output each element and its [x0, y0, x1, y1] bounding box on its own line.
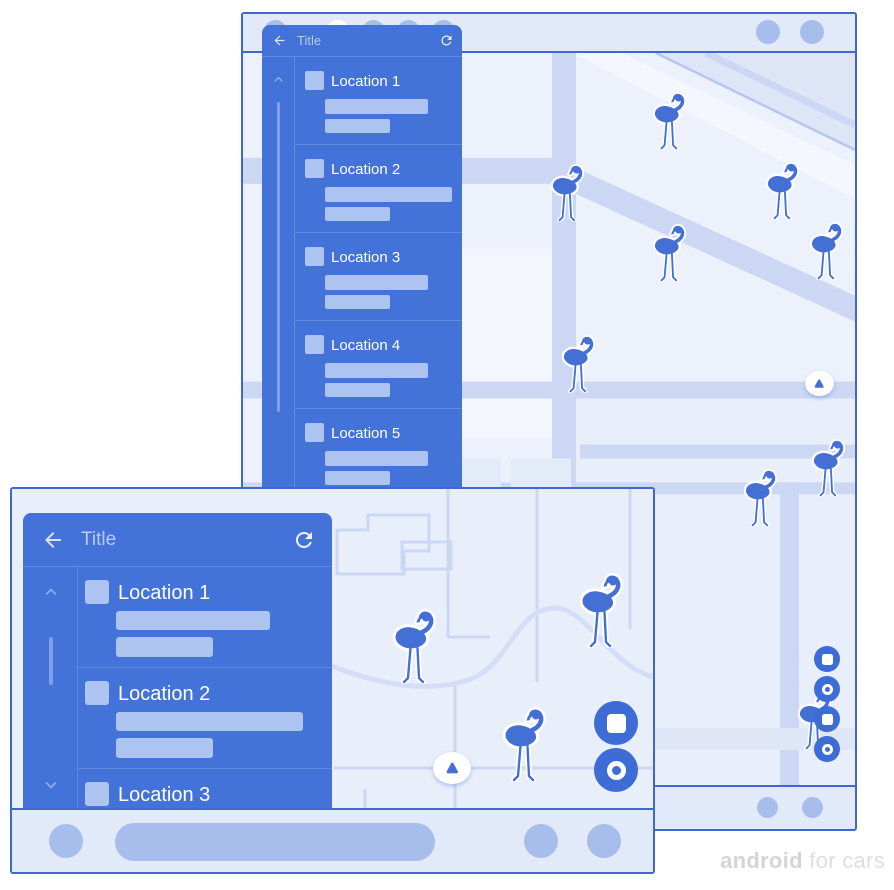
checkbox-placeholder	[85, 782, 109, 806]
car-window: Title Location 1	[10, 487, 655, 874]
nav-dot[interactable]	[524, 824, 558, 858]
checkbox-placeholder	[305, 159, 324, 178]
checkbox-placeholder	[305, 71, 324, 90]
scroll-rail	[262, 57, 295, 500]
flamingo-marker-icon[interactable]	[812, 438, 846, 497]
item-label: Location 2	[331, 161, 400, 178]
home-dot[interactable]	[49, 824, 83, 858]
text-placeholder-bar	[325, 99, 428, 114]
map-button-stack	[814, 646, 840, 762]
place-list-panel: Title Location 1	[23, 513, 332, 808]
map-action-button[interactable]	[814, 646, 840, 672]
text-placeholder-bar	[325, 471, 390, 485]
list-item[interactable]: Location 1	[78, 567, 332, 668]
square-icon	[822, 714, 833, 725]
flamingo-marker-icon[interactable]	[653, 91, 687, 150]
back-arrow-icon[interactable]	[41, 528, 65, 552]
map-action-button[interactable]	[814, 736, 840, 762]
list-item[interactable]: Location 4	[295, 321, 462, 409]
checkbox-placeholder	[305, 423, 324, 442]
item-label: Location 5	[331, 425, 400, 442]
status-dot[interactable]	[756, 20, 780, 44]
item-label: Location 4	[331, 337, 400, 354]
text-placeholder-bar	[116, 637, 213, 657]
checkbox-placeholder	[305, 335, 324, 354]
item-label: Location 1	[118, 582, 210, 605]
flamingo-marker-icon[interactable]	[653, 223, 687, 282]
list-item[interactable]: Location 1	[295, 57, 462, 145]
checkbox-placeholder	[85, 580, 109, 604]
map-action-button[interactable]	[594, 748, 638, 792]
text-placeholder-bar	[325, 207, 390, 221]
car-bottom-bar	[12, 808, 653, 872]
text-placeholder-bar	[325, 119, 390, 133]
nav-dot[interactable]	[802, 797, 823, 818]
back-arrow-icon[interactable]	[272, 33, 287, 48]
flamingo-marker-icon[interactable]	[393, 608, 437, 684]
watermark-suffix: for cars	[803, 848, 885, 873]
watermark-brand: android	[720, 848, 803, 873]
square-icon	[822, 654, 833, 665]
panel-body: Location 1 Location 2 Location 3	[23, 567, 332, 808]
list-item[interactable]: Location 3	[78, 769, 332, 808]
refresh-icon[interactable]	[439, 33, 454, 48]
chevron-up-icon[interactable]	[40, 581, 62, 603]
list-item[interactable]: Location 2	[295, 145, 462, 233]
nav-dot[interactable]	[587, 824, 621, 858]
checkbox-placeholder	[305, 247, 324, 266]
chevron-down-icon[interactable]	[40, 774, 62, 796]
text-placeholder-bar	[116, 611, 270, 630]
panel-body: Location 1 Location 2 Location 3	[262, 57, 462, 500]
flamingo-marker-icon[interactable]	[744, 468, 778, 527]
refresh-icon[interactable]	[292, 528, 316, 552]
flamingo-marker-icon[interactable]	[562, 334, 596, 393]
place-list: Location 1 Location 2 Location 3	[78, 567, 332, 808]
scrollbar-thumb[interactable]	[49, 637, 53, 685]
circle-icon	[822, 744, 833, 755]
item-label: Location 3	[118, 784, 210, 807]
circle-icon	[822, 684, 833, 695]
list-item[interactable]: Location 3	[295, 233, 462, 321]
map-button-stack	[594, 701, 638, 792]
nav-dot[interactable]	[757, 797, 778, 818]
item-label: Location 2	[118, 683, 210, 706]
scrollbar-thumb[interactable]	[277, 102, 280, 412]
list-item[interactable]: Location 5	[295, 409, 462, 497]
panel-title: Title	[297, 33, 439, 48]
text-placeholder-bar	[325, 295, 390, 309]
recenter-button[interactable]	[433, 752, 471, 784]
map-action-button[interactable]	[814, 676, 840, 702]
map-action-button[interactable]	[594, 701, 638, 745]
square-icon	[607, 714, 626, 733]
text-placeholder-bar	[325, 363, 428, 378]
watermark: android for cars	[720, 848, 885, 874]
nav-triangle-icon	[439, 757, 466, 779]
panel-header: Title	[262, 25, 462, 57]
flamingo-marker-icon[interactable]	[503, 706, 547, 782]
map-action-button[interactable]	[814, 706, 840, 732]
scroll-rail	[23, 567, 78, 808]
panel-header: Title	[23, 513, 332, 567]
flamingo-marker-icon[interactable]	[551, 163, 585, 222]
chevron-up-icon[interactable]	[270, 71, 287, 88]
nav-triangle-icon	[809, 375, 829, 393]
text-placeholder-bar	[325, 187, 452, 202]
status-dot[interactable]	[800, 20, 824, 44]
text-placeholder-bar	[325, 383, 390, 397]
checkbox-placeholder	[85, 681, 109, 705]
text-placeholder-bar	[116, 712, 303, 731]
item-label: Location 1	[331, 73, 400, 90]
text-placeholder-bar	[116, 738, 213, 758]
list-item[interactable]: Location 2	[78, 668, 332, 769]
circle-icon	[607, 761, 626, 780]
flamingo-marker-icon[interactable]	[810, 221, 844, 280]
place-list: Location 1 Location 2 Location 3	[295, 57, 462, 500]
panel-title: Title	[81, 529, 292, 551]
flamingo-marker-icon[interactable]	[766, 161, 800, 220]
canvas: Title Location 1 Lo	[0, 0, 894, 890]
item-label: Location 3	[331, 249, 400, 266]
app-bar-pill[interactable]	[115, 823, 435, 861]
recenter-button[interactable]	[805, 371, 834, 396]
place-list-panel: Title Location 1 Lo	[262, 25, 462, 500]
text-placeholder-bar	[325, 275, 428, 290]
text-placeholder-bar	[325, 451, 428, 466]
flamingo-marker-icon[interactable]	[580, 572, 624, 648]
